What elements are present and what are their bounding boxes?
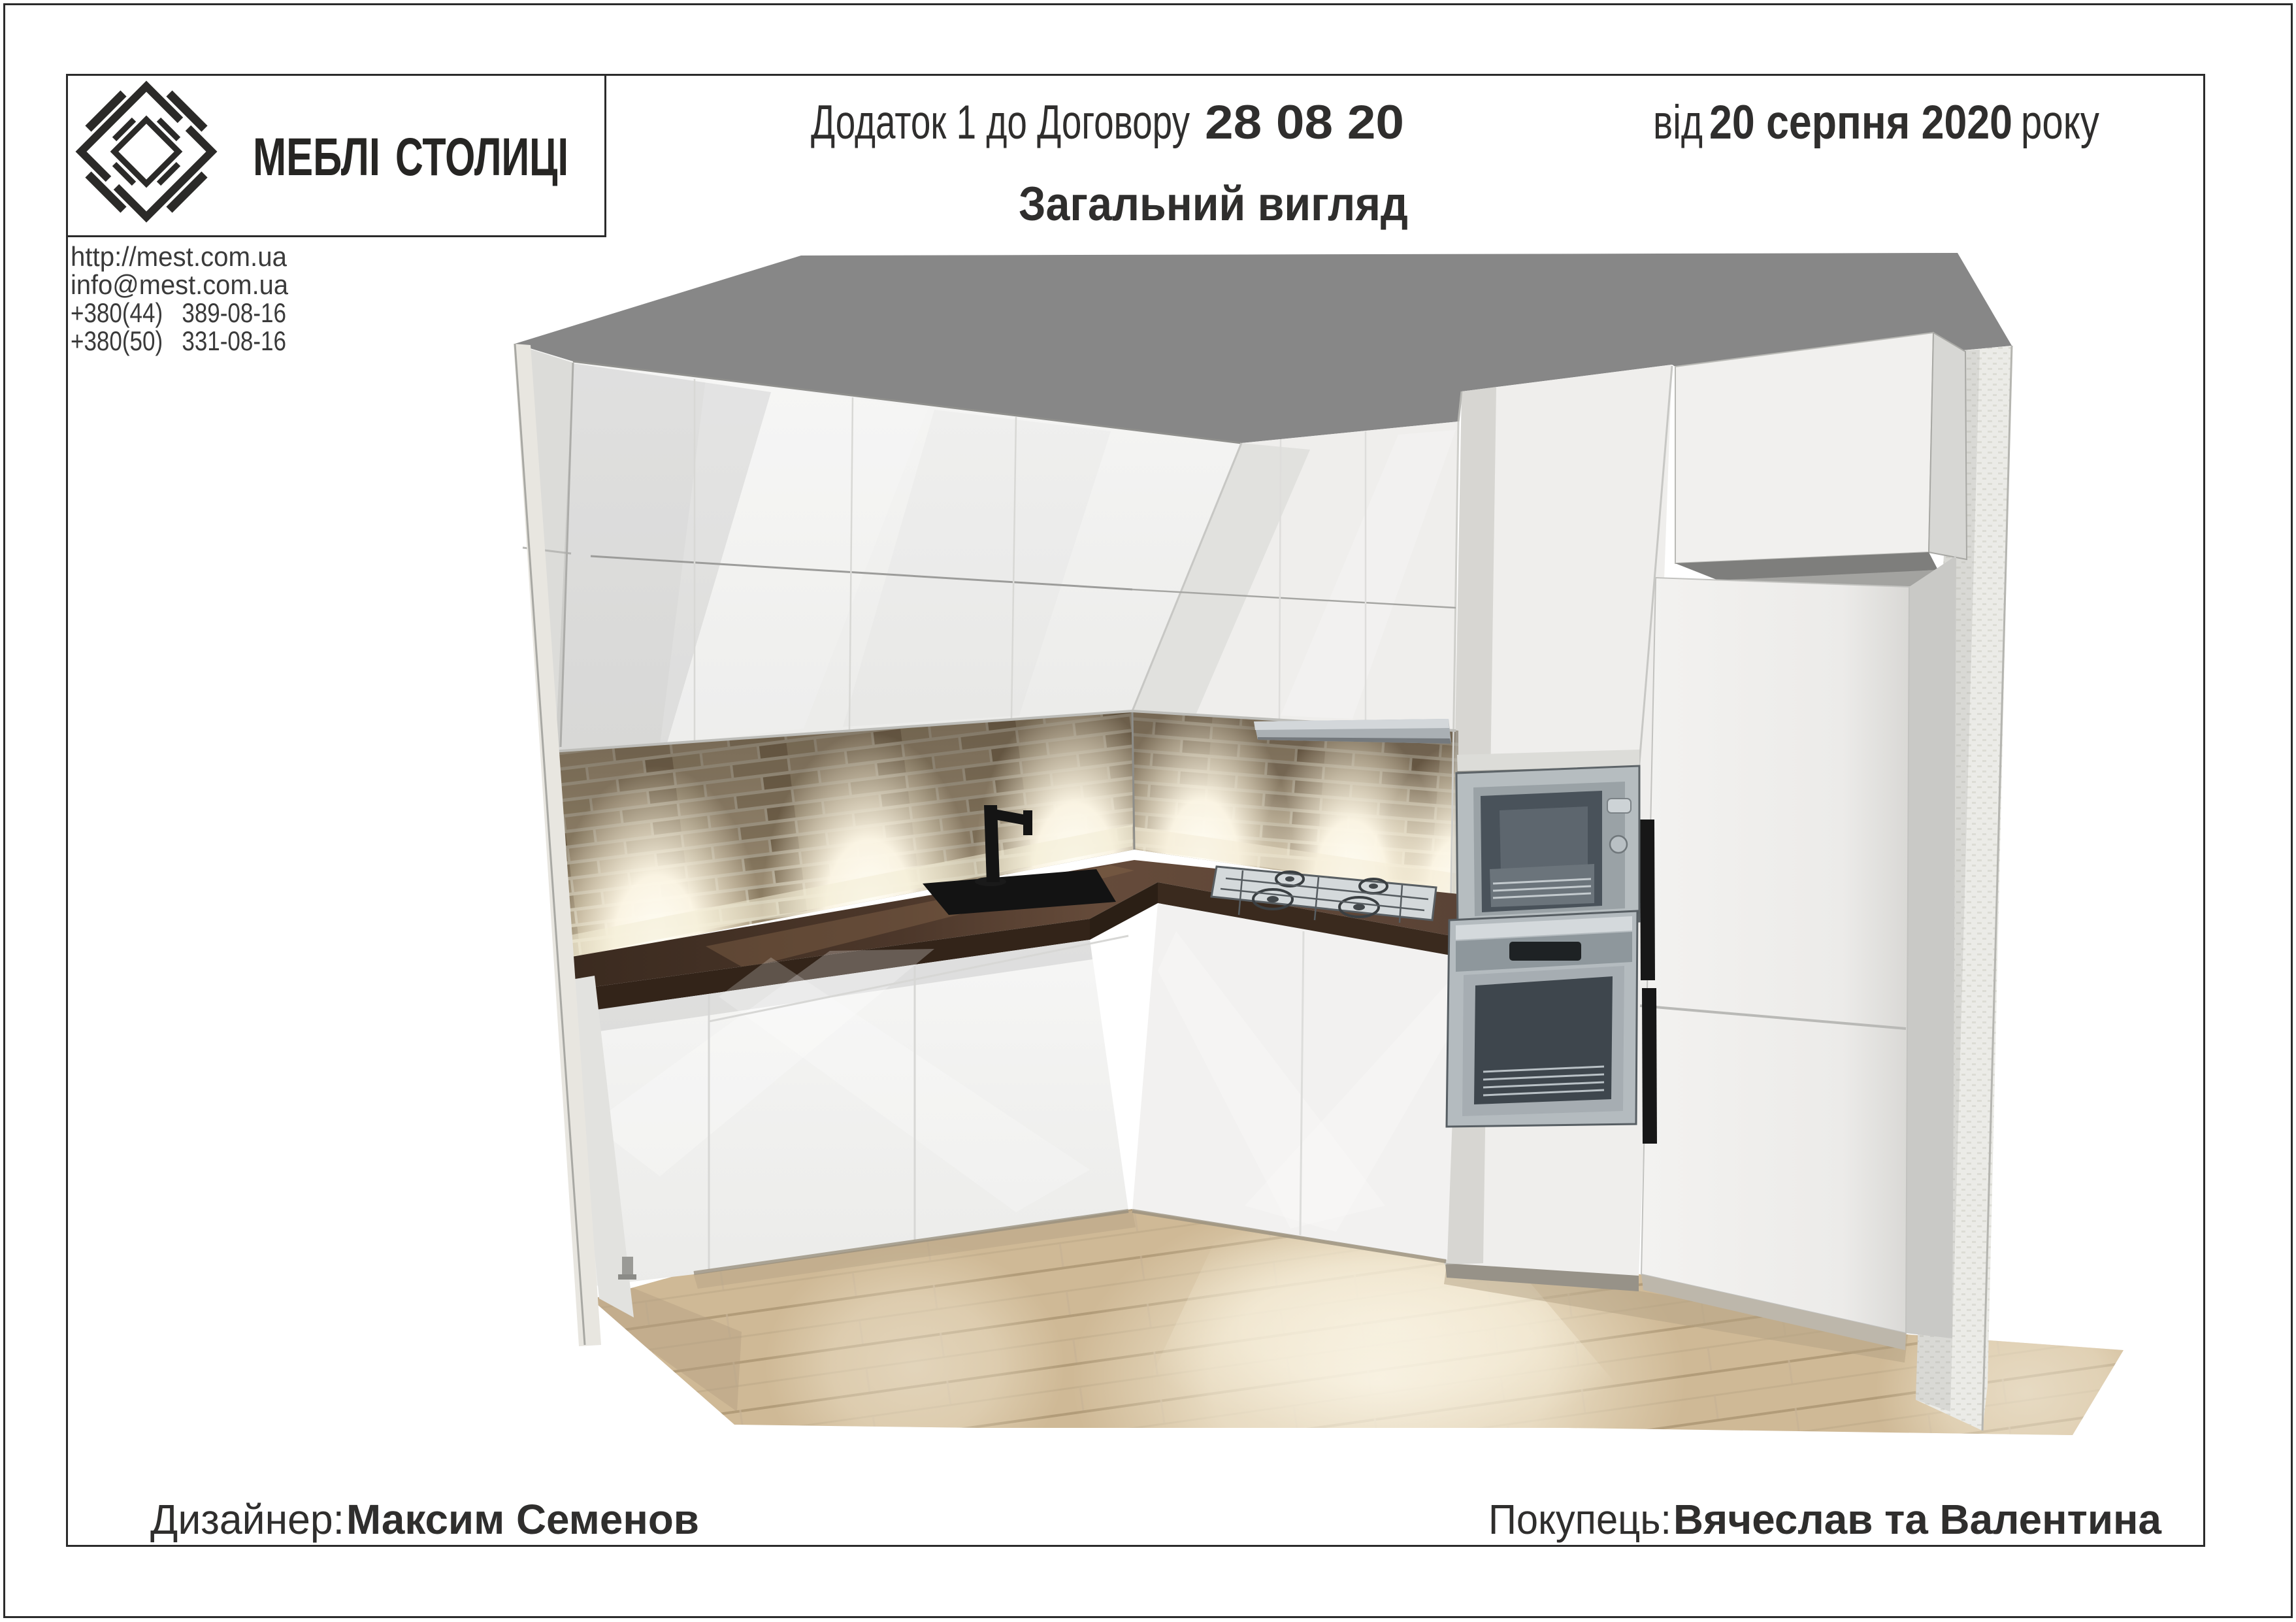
svg-text:від: від bbox=[1653, 96, 1703, 149]
svg-text:info@mest.com.ua: info@mest.com.ua bbox=[71, 269, 289, 300]
svg-text:СТОЛИЦІ: СТОЛИЦІ bbox=[395, 127, 568, 187]
svg-text:+380(44) 389-08-16: +380(44) 389-08-16 bbox=[71, 297, 286, 328]
svg-text:Додаток 1 до Договору: Додаток 1 до Договору bbox=[811, 96, 1190, 149]
svg-text:року: року bbox=[2021, 96, 2099, 149]
svg-text:http://mest.com.ua: http://mest.com.ua bbox=[71, 241, 287, 272]
svg-text:Дизайнер:: Дизайнер: bbox=[150, 1496, 344, 1543]
svg-text:28 08 20: 28 08 20 bbox=[1205, 96, 1404, 149]
svg-text:Максим Семенов: Максим Семенов bbox=[346, 1496, 699, 1543]
svg-text:20 серпня 2020: 20 серпня 2020 bbox=[1709, 96, 2012, 149]
svg-text:МЕБЛІ: МЕБЛІ bbox=[253, 127, 380, 187]
svg-text:Вячеслав та Валентина: Вячеслав та Валентина bbox=[1673, 1496, 2161, 1543]
svg-text:Покупець:: Покупець: bbox=[1488, 1496, 1671, 1543]
svg-text:+380(50) 331-08-16: +380(50) 331-08-16 bbox=[71, 325, 286, 356]
svg-text:Загальний вигляд: Загальний вигляд bbox=[1019, 178, 1408, 231]
